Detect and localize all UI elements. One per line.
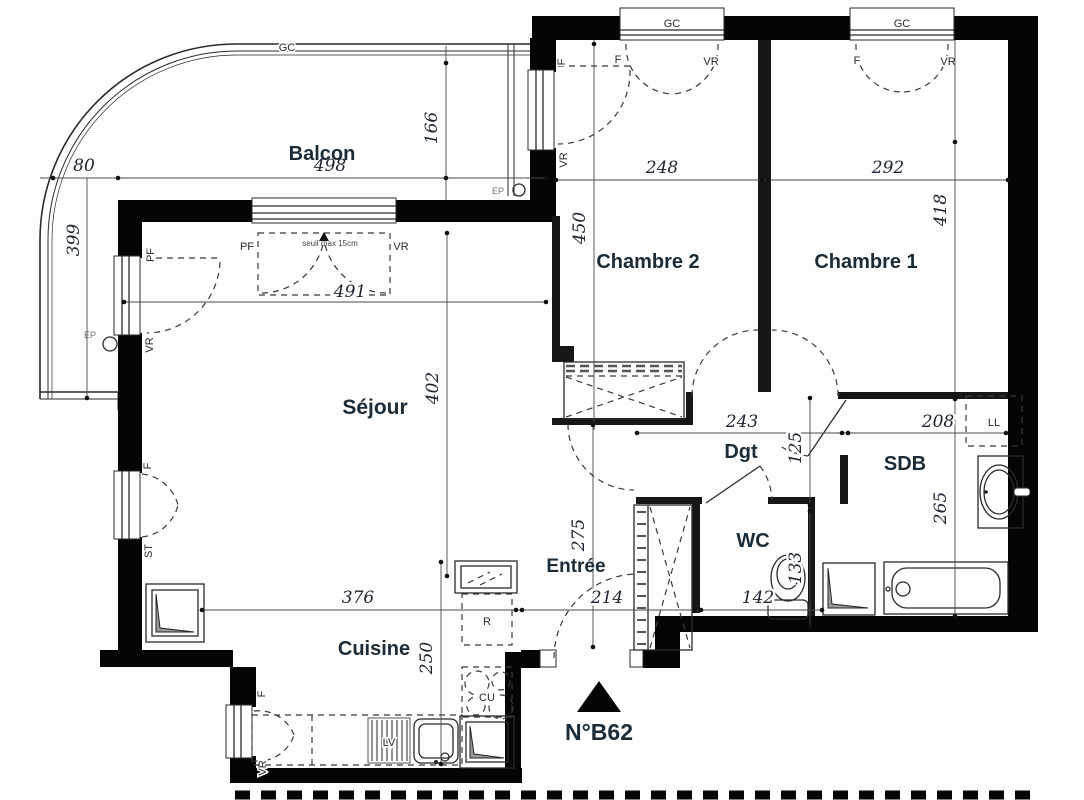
floor-plan-drawing: EP EP — [0, 0, 1084, 800]
dim-491: 491 — [333, 282, 366, 302]
closet-chambre2 — [564, 362, 684, 419]
entrance-marker: N°B62 — [565, 681, 633, 745]
window-vr-label: VR — [393, 241, 408, 253]
window-f-label: F — [256, 690, 268, 697]
room-label-degagement: Dgt — [724, 441, 758, 463]
window-pf-label: PF — [240, 241, 254, 253]
gc-label-balcony: GC — [279, 42, 296, 54]
dim-214: 214 — [590, 588, 623, 608]
closets — [564, 362, 692, 650]
fridge: R — [462, 594, 512, 645]
door-swing-entrance — [554, 574, 638, 658]
lv-label: LV — [383, 737, 396, 749]
room-label-sejour: Séjour — [342, 396, 407, 419]
window-vr-label: VR — [940, 56, 955, 68]
door-swing-chambre2 — [692, 330, 758, 396]
dim-166: 166 — [422, 112, 442, 145]
window-f-label: F — [615, 54, 622, 66]
gc-label: GC — [664, 18, 681, 30]
dim-399: 399 — [64, 224, 84, 257]
room-label-balcon: Balcon — [289, 143, 356, 165]
radiator-sdb — [823, 563, 875, 615]
rainwater-pipe-icon — [103, 337, 117, 351]
room-label-sdb: SDB — [884, 453, 926, 475]
radiator-sejour — [146, 584, 204, 642]
room-label-cuisine: Cuisine — [338, 638, 410, 660]
window-vr-label: VR — [257, 760, 269, 775]
room-label-wc: WC — [736, 530, 769, 552]
dim-80: 80 — [73, 156, 95, 176]
window-chambre1-north: GC F VR — [850, 8, 956, 92]
kitchen-hood-cabinet — [455, 561, 517, 593]
dim-208: 208 — [921, 412, 955, 432]
window-st-label: ST — [143, 544, 155, 558]
door-leaf-wc — [706, 466, 760, 503]
fixtures: LV CU R — [146, 396, 1030, 768]
balcony-railing: EP EP — [40, 44, 546, 410]
dim-248: 248 — [645, 158, 679, 178]
window-f-label: F — [142, 462, 154, 469]
entrance-jamb-right — [630, 650, 643, 667]
ep-label: EP — [84, 330, 96, 340]
door-swing-degagement — [568, 424, 634, 490]
window-chambre2-north: GC F VR — [615, 8, 724, 94]
window-vr-label: VR — [144, 337, 156, 352]
dim-292: 292 — [871, 158, 904, 178]
door-swing-chambre1 — [772, 330, 838, 396]
exterior-walls — [100, 16, 1038, 783]
bay-window-sejour: seuil max 15cm PF VR — [240, 198, 409, 295]
bathtub — [884, 562, 1008, 614]
room-label-entree: Entrée — [546, 556, 605, 577]
dim-402: 402 — [423, 372, 443, 405]
seuil-note: seuil max 15cm — [302, 239, 358, 248]
floor-plan: EP EP — [0, 0, 1084, 800]
rainwater-pipe-icon — [513, 184, 525, 196]
window-vr-label: VR — [558, 152, 570, 167]
window-pf-label: PF — [145, 248, 157, 262]
gc-label: GC — [894, 18, 911, 30]
dim-125: 125 — [786, 432, 806, 464]
ll-label: LL — [988, 417, 1000, 429]
dim-418: 418 — [931, 194, 951, 228]
room-label-chambre1: Chambre 1 — [814, 251, 917, 273]
dim-133: 133 — [786, 552, 806, 584]
dim-142: 142 — [742, 588, 774, 608]
window-f-label: F — [556, 58, 568, 65]
cu-label: CU — [479, 692, 495, 704]
kitchen-sink — [414, 719, 458, 764]
unit-number: N°B62 — [565, 719, 633, 745]
dim-376: 376 — [342, 588, 375, 608]
door-swing-wc — [760, 466, 772, 500]
dim-275: 275 — [569, 519, 589, 552]
ep-label: EP — [492, 186, 504, 196]
dim-450: 450 — [570, 212, 590, 246]
interior-partitions — [552, 40, 1008, 616]
dim-243: 243 — [725, 412, 758, 432]
dim-265: 265 — [931, 492, 951, 525]
fridge-label: R — [483, 616, 491, 628]
door-leaf-sdb — [808, 400, 846, 456]
room-label-chambre2: Chambre 2 — [596, 251, 699, 273]
dishwasher: LV — [368, 718, 410, 763]
entrance-arrow-icon — [577, 681, 621, 712]
closet-door-hatch — [637, 512, 646, 644]
dim-250: 250 — [417, 642, 437, 676]
window-vr-label: VR — [703, 56, 718, 68]
window-f-label: F — [854, 55, 861, 67]
